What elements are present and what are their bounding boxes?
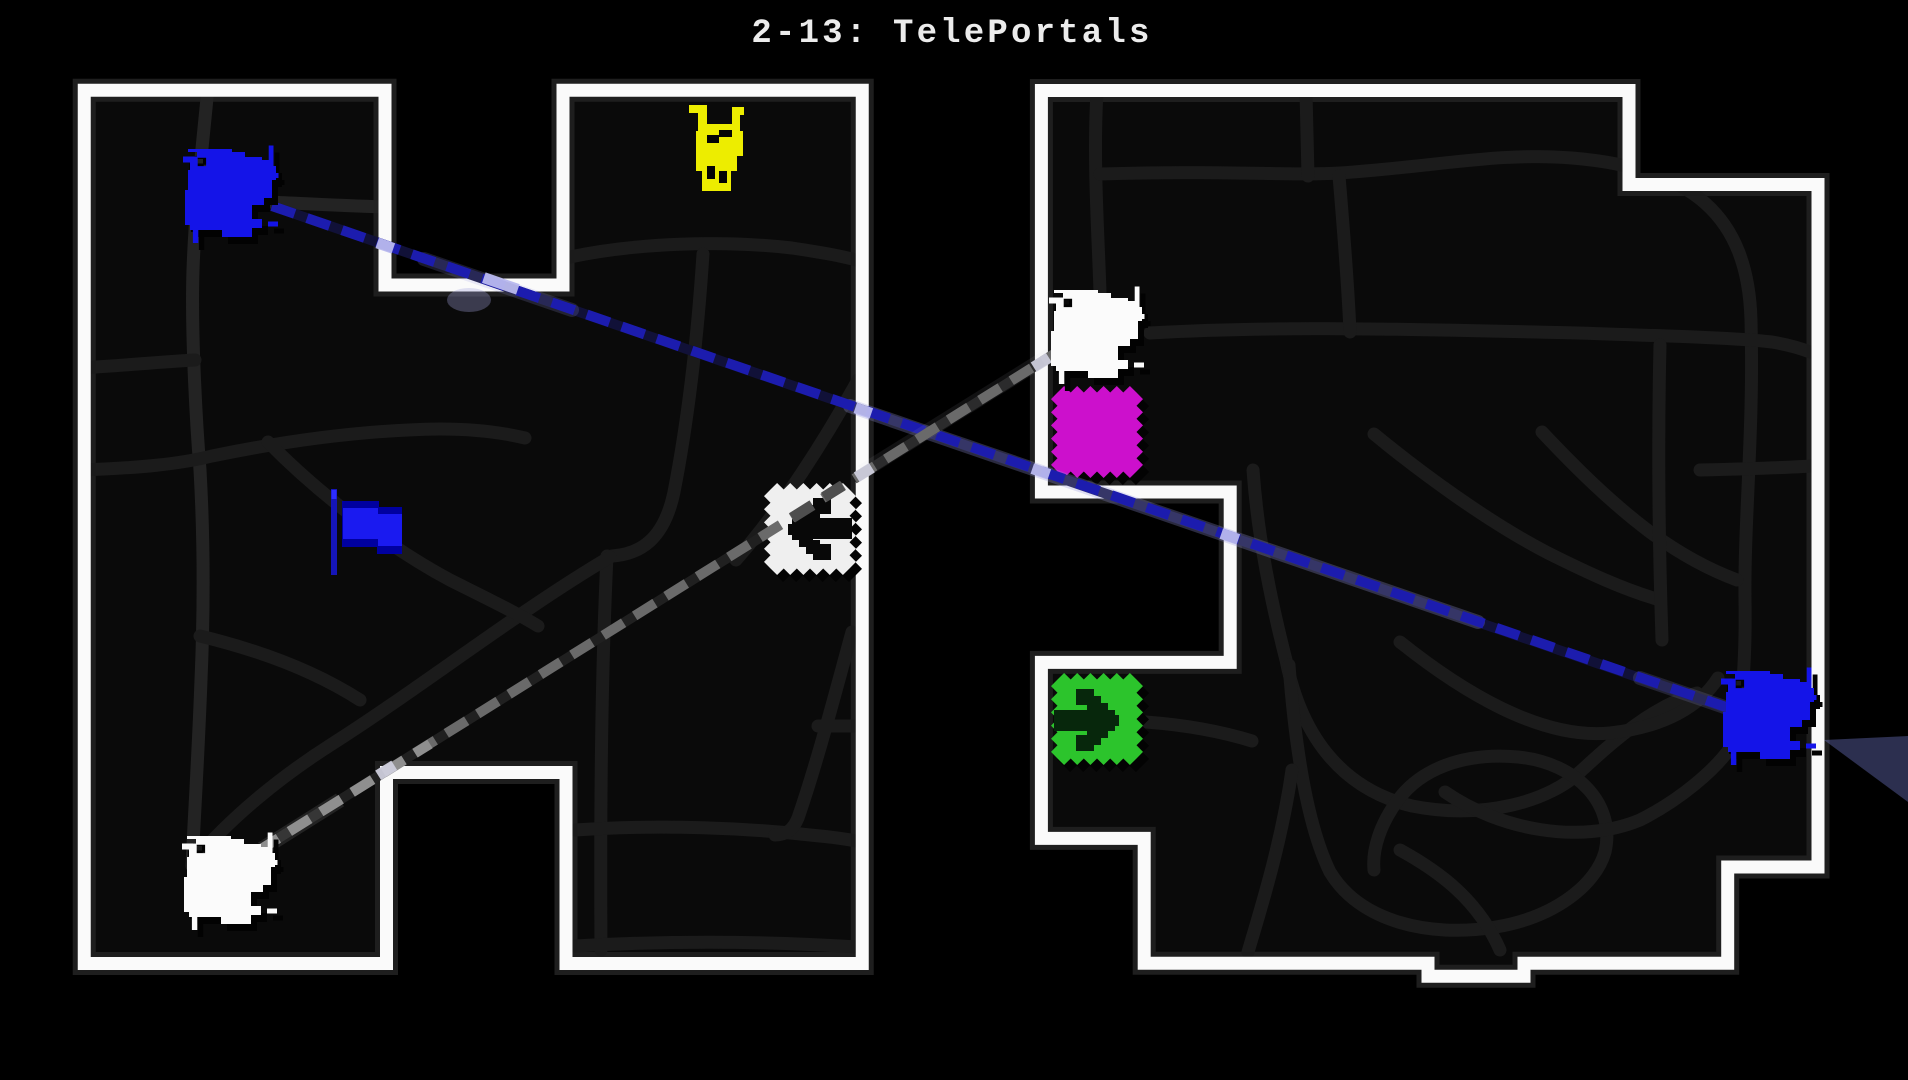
svg-text:2-13: TelePortals: 2-13: TelePortals xyxy=(751,15,1152,53)
